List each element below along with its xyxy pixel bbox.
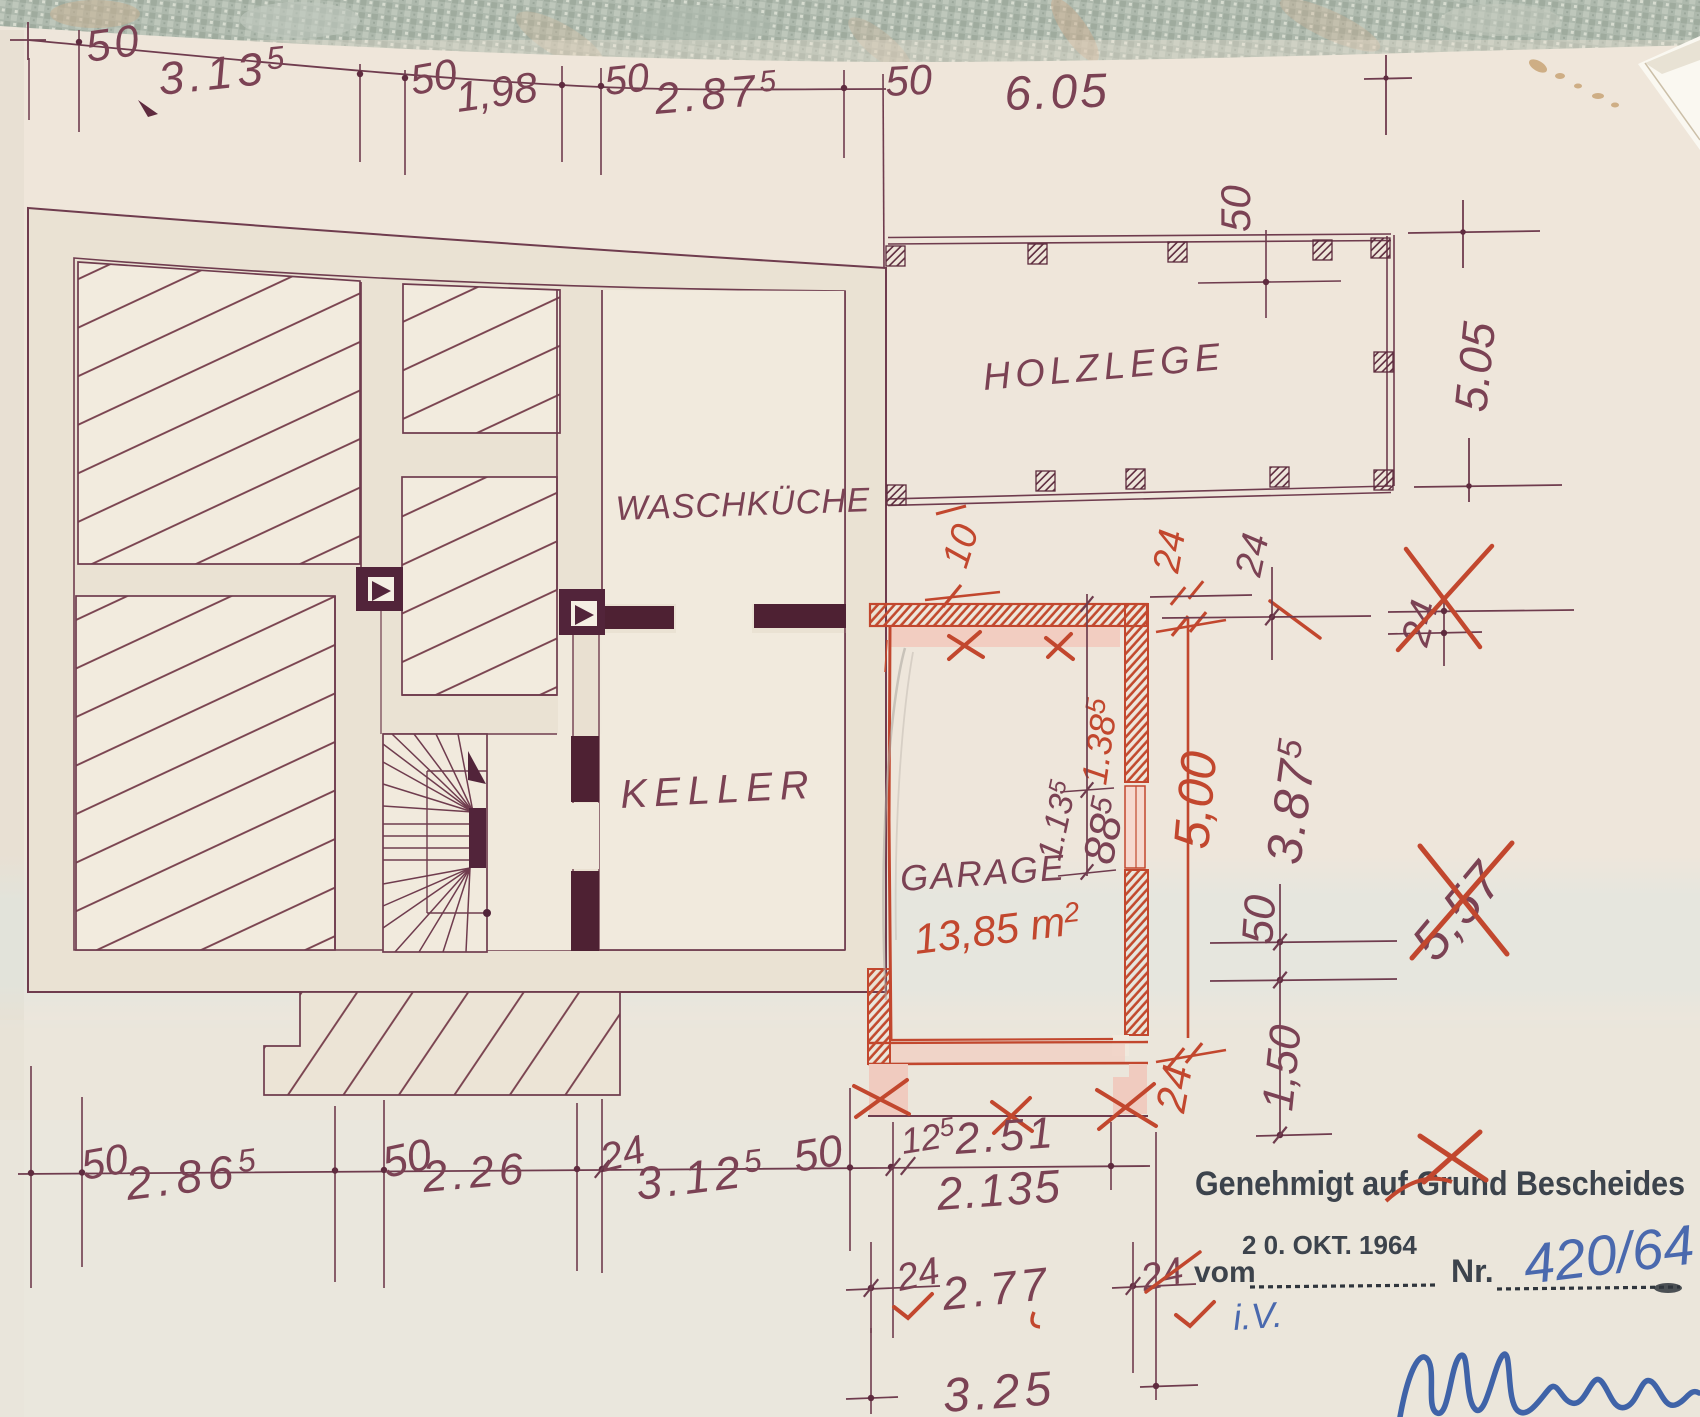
svg-text:50: 50 [884,56,934,105]
svg-text:2 0. OKT. 1964: 2 0. OKT. 1964 [1242,1230,1417,1260]
svg-text:Nr.: Nr. [1451,1253,1494,1289]
svg-text:50: 50 [83,15,146,71]
svg-text:24: 24 [1146,1061,1201,1116]
svg-text:i.V.: i.V. [1232,1294,1284,1338]
svg-text:2.26: 2.26 [420,1144,531,1202]
svg-text:50: 50 [602,56,651,104]
svg-text:2.51: 2.51 [952,1108,1058,1164]
svg-text:24: 24 [892,1250,943,1300]
svg-text:50: 50 [790,1126,847,1182]
svg-text:5,00: 5,00 [1163,749,1227,851]
svg-text:50: 50 [1212,185,1259,232]
svg-text:6.05: 6.05 [1004,64,1111,121]
svg-text:5.05: 5.05 [1444,319,1505,414]
svg-text:3.25: 3.25 [941,1362,1058,1417]
svg-text:1,50: 1,50 [1253,1022,1311,1113]
svg-text:50: 50 [1233,893,1285,946]
svg-text:2.135: 2.135 [934,1159,1063,1220]
svg-text:24: 24 [1136,1250,1187,1300]
svg-text:24: 24 [1228,530,1278,581]
svg-text:vom: vom [1194,1256,1256,1289]
svg-text:24: 24 [1145,527,1194,577]
